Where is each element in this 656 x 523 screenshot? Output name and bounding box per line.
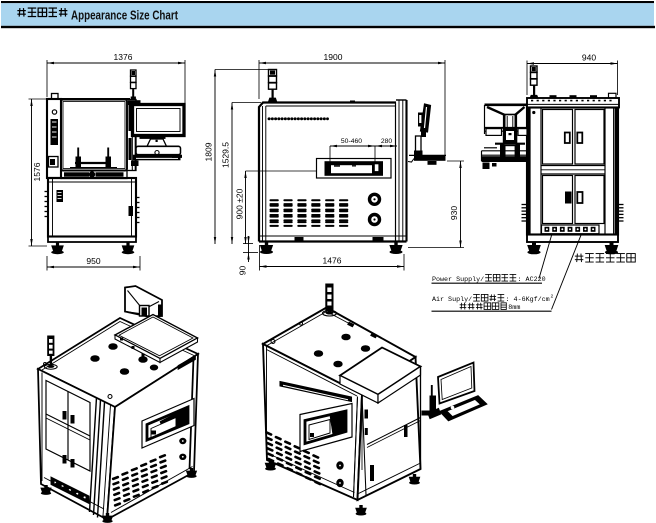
svg-text:950: 950 <box>86 256 100 266</box>
svg-text:90: 90 <box>238 266 248 276</box>
svg-text:280: 280 <box>381 138 393 145</box>
svg-text:1900: 1900 <box>324 52 343 62</box>
svg-text:900 ±20: 900 ±20 <box>235 188 245 219</box>
svg-text:Power Supply/: Power Supply/ <box>432 276 484 284</box>
svg-text:1809: 1809 <box>204 142 214 161</box>
svg-text:1529.5: 1529.5 <box>221 142 231 168</box>
svg-text:: AC220: : AC220 <box>518 276 546 284</box>
svg-text:50-460: 50-460 <box>341 138 362 145</box>
svg-text:: 4-6Kgf/cm: : 4-6Kgf/cm <box>506 296 550 304</box>
svg-text:940: 940 <box>582 53 596 63</box>
svg-text:1476: 1476 <box>323 256 342 266</box>
svg-text:1576: 1576 <box>32 162 42 181</box>
svg-text:2: 2 <box>551 294 554 300</box>
svg-text:8mm: 8mm <box>508 304 520 312</box>
svg-text:Appearance Size Chart: Appearance Size Chart <box>71 8 179 22</box>
svg-text:930: 930 <box>449 206 459 220</box>
svg-text:1376: 1376 <box>114 52 133 62</box>
svg-text:Air Suply/: Air Suply/ <box>432 296 472 304</box>
